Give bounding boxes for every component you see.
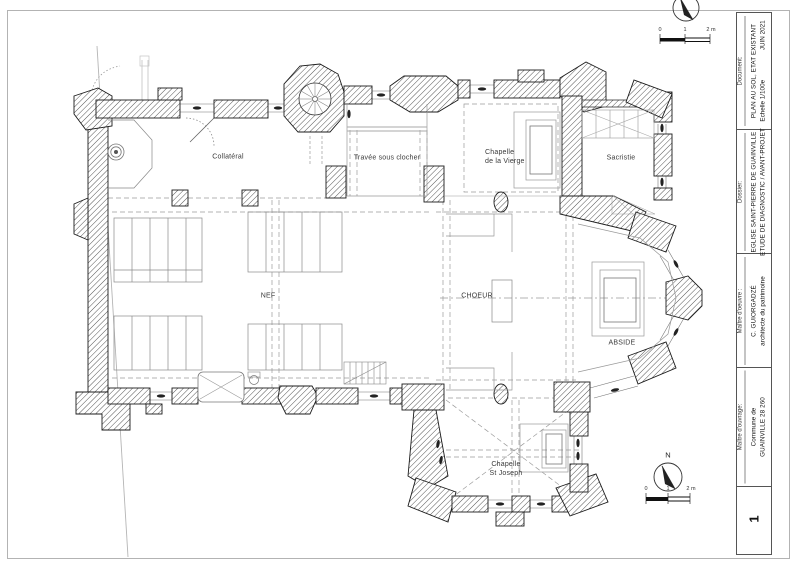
- document-scale: Echelle 1/100e: [759, 80, 766, 122]
- interior-lines: [108, 104, 676, 372]
- north-label: N: [665, 451, 670, 460]
- title-block-dossier-cell: Dossier: EGLISE SAINT-PIERRE DE GUAINVIL…: [737, 130, 771, 254]
- sacristy-stairs: [582, 110, 654, 138]
- scale-tick-top-0: 0: [658, 27, 661, 33]
- title-block-architect-cell: Maître d'oeuvre : C. GUIORGADZÉ architec…: [737, 254, 771, 368]
- document-title: PLAN AU SOL, ETAT EXISTANT: [750, 24, 757, 118]
- architect-name: C. GUIORGADZÉ: [750, 285, 757, 337]
- owner-line2: GUAINVILLE 28 260: [759, 397, 766, 457]
- floor-plan-drawing: [0, 0, 800, 566]
- room-label-travee-sous-clocher: Travée sous clocher: [354, 155, 421, 162]
- document-label: Document:: [738, 16, 746, 126]
- spiral-staircase: [299, 83, 331, 115]
- owner-label: Maître d'ouvrage:: [738, 371, 746, 484]
- pulpit-stairs: [344, 362, 386, 384]
- architect-role: architecte du patrimoine: [759, 276, 766, 346]
- scale-tick-bottom-1: 1: [666, 486, 669, 492]
- dossier-line1: EGLISE SAINT-PIERRE DE GUAINVILLE: [750, 131, 757, 252]
- scale-bar-bottom: [646, 493, 690, 504]
- choir-stalls: [446, 214, 512, 390]
- document-date: JUIN 2021: [759, 20, 766, 50]
- dossier-line2: ETUDE DE DIAGNOSTIC / AVANT-PROJET: [759, 128, 766, 256]
- pews: [114, 212, 342, 370]
- dossier-label: Dossier:: [738, 133, 746, 251]
- title-block-page-cell: 1: [737, 487, 771, 550]
- baptismal-font: [108, 144, 124, 160]
- north-arrow-top-icon: [673, 0, 699, 21]
- scale-tick-bottom-2m: 2 m: [686, 486, 695, 492]
- page-number: 1: [747, 490, 762, 548]
- room-label-chapelle-st-joseph: Chapelle St Joseph: [490, 460, 523, 478]
- architect-label: Maître d'oeuvre :: [738, 257, 746, 365]
- scale-tick-bottom-0: 0: [644, 486, 647, 492]
- scale-tick-top-2m: 2 m: [706, 27, 715, 33]
- room-label-nef: NEF: [261, 293, 276, 300]
- title-block: Document: PLAN AU SOL, ETAT EXISTANT Ech…: [736, 12, 772, 555]
- scale-tick-top-1: 1: [683, 27, 686, 33]
- entrance-lobby: [198, 372, 244, 402]
- title-block-owner-cell: Maître d'ouvrage: Commune de GUAINVILLE …: [737, 368, 771, 487]
- title-block-document-cell: Document: PLAN AU SOL, ETAT EXISTANT Ech…: [737, 13, 771, 130]
- owner-line1: Commune de: [750, 408, 757, 447]
- scale-bar-top: [660, 34, 710, 44]
- vault-dashed-lines: [108, 104, 698, 502]
- holy-water-stoup: [248, 372, 260, 385]
- room-label-sacristie: Sacristie: [607, 155, 636, 162]
- room-label-choeur: CHOEUR: [461, 293, 493, 300]
- drawing-sheet: Collatéral Travée sous clocher Chapelle …: [0, 0, 800, 566]
- room-label-abside: ABSIDE: [609, 340, 636, 347]
- room-label-chapelle-vierge: Chapelle de la Vierge: [485, 148, 525, 166]
- walls-hatched: [74, 62, 702, 526]
- room-label-collateral: Collatéral: [212, 154, 244, 161]
